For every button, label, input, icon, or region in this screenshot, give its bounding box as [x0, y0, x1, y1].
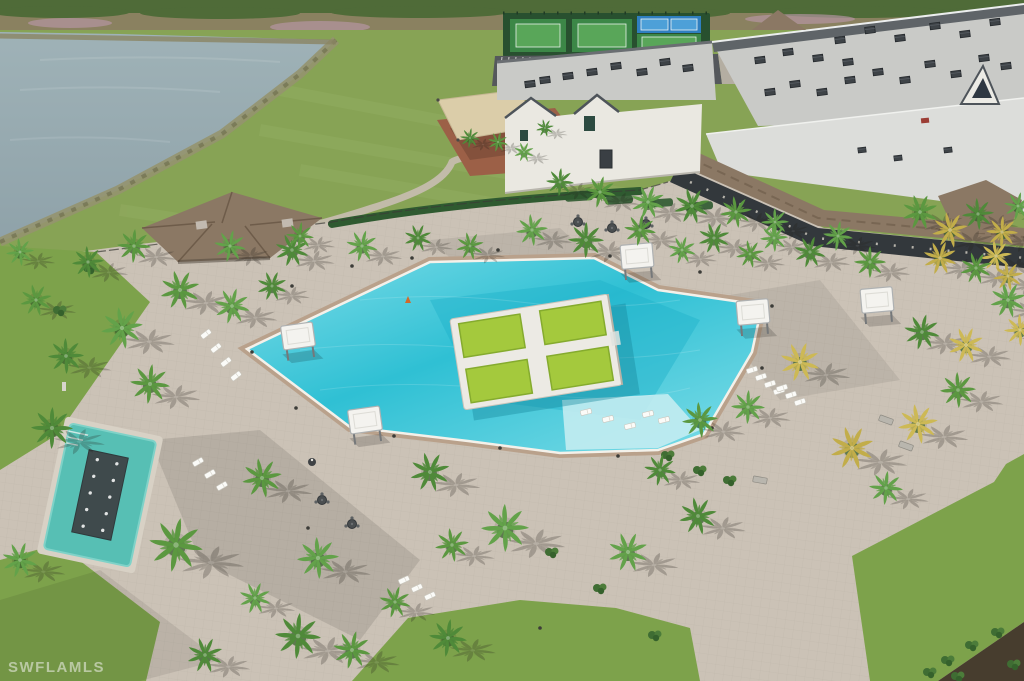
- hvac-unit: [660, 58, 671, 66]
- hvac-unit: [563, 72, 574, 80]
- hvac-unit: [894, 155, 903, 161]
- red-roof-vent: [921, 118, 929, 124]
- bollard-light: [698, 270, 702, 274]
- entry-door: [600, 150, 612, 168]
- hvac-unit: [930, 22, 941, 30]
- bollard-light: [410, 256, 414, 260]
- bollard-light: [496, 248, 500, 252]
- hvac-unit: [783, 48, 794, 56]
- hvac-unit: [525, 80, 536, 88]
- bollard-light: [290, 284, 294, 288]
- window-2: [584, 116, 595, 131]
- bollard-light: [392, 434, 396, 438]
- bollard-light: [250, 350, 254, 354]
- bollard-light: [760, 366, 764, 370]
- hvac-unit: [587, 68, 598, 76]
- hvac-unit: [951, 70, 962, 78]
- bollard-light: [608, 254, 612, 258]
- hvac-unit: [925, 60, 936, 68]
- bollard-light: [306, 526, 310, 530]
- scene-canvas: [0, 0, 1024, 681]
- hvac-unit: [683, 64, 694, 72]
- hvac-unit: [835, 36, 846, 44]
- hvac-unit: [611, 62, 622, 70]
- hvac-unit: [765, 88, 776, 96]
- hvac-unit: [990, 18, 1001, 26]
- hvac-unit: [858, 147, 867, 153]
- bollard-light: [498, 446, 502, 450]
- aerial-photo-pool-amenity: SWFLAMLS: [0, 0, 1024, 681]
- bollard-light: [538, 626, 542, 630]
- garden-statue: [62, 382, 66, 391]
- bollard-light: [294, 406, 298, 410]
- watermark: SWFLAMLS: [8, 659, 105, 676]
- bollard-light: [770, 304, 774, 308]
- hvac-unit: [895, 34, 906, 42]
- hvac-unit: [1001, 62, 1012, 70]
- hvac-unit: [960, 30, 971, 38]
- hvac-unit: [873, 68, 884, 76]
- urn-highlight: [311, 459, 313, 461]
- hvac-unit: [790, 80, 801, 88]
- hvac-unit: [813, 54, 824, 62]
- hvac-unit: [979, 54, 990, 62]
- hvac-unit: [865, 26, 876, 34]
- hvac-unit: [944, 147, 953, 153]
- hvac-unit: [637, 68, 648, 76]
- hvac-unit: [540, 76, 551, 84]
- window-1: [520, 130, 528, 141]
- gazebo-skylight-1: [195, 220, 207, 229]
- bollard-light: [616, 454, 620, 458]
- bollard-light: [350, 264, 354, 268]
- hvac-unit: [843, 58, 854, 66]
- hvac-unit: [845, 76, 856, 84]
- hvac-unit: [755, 56, 766, 64]
- hvac-unit: [900, 76, 911, 84]
- hvac-unit: [817, 88, 828, 96]
